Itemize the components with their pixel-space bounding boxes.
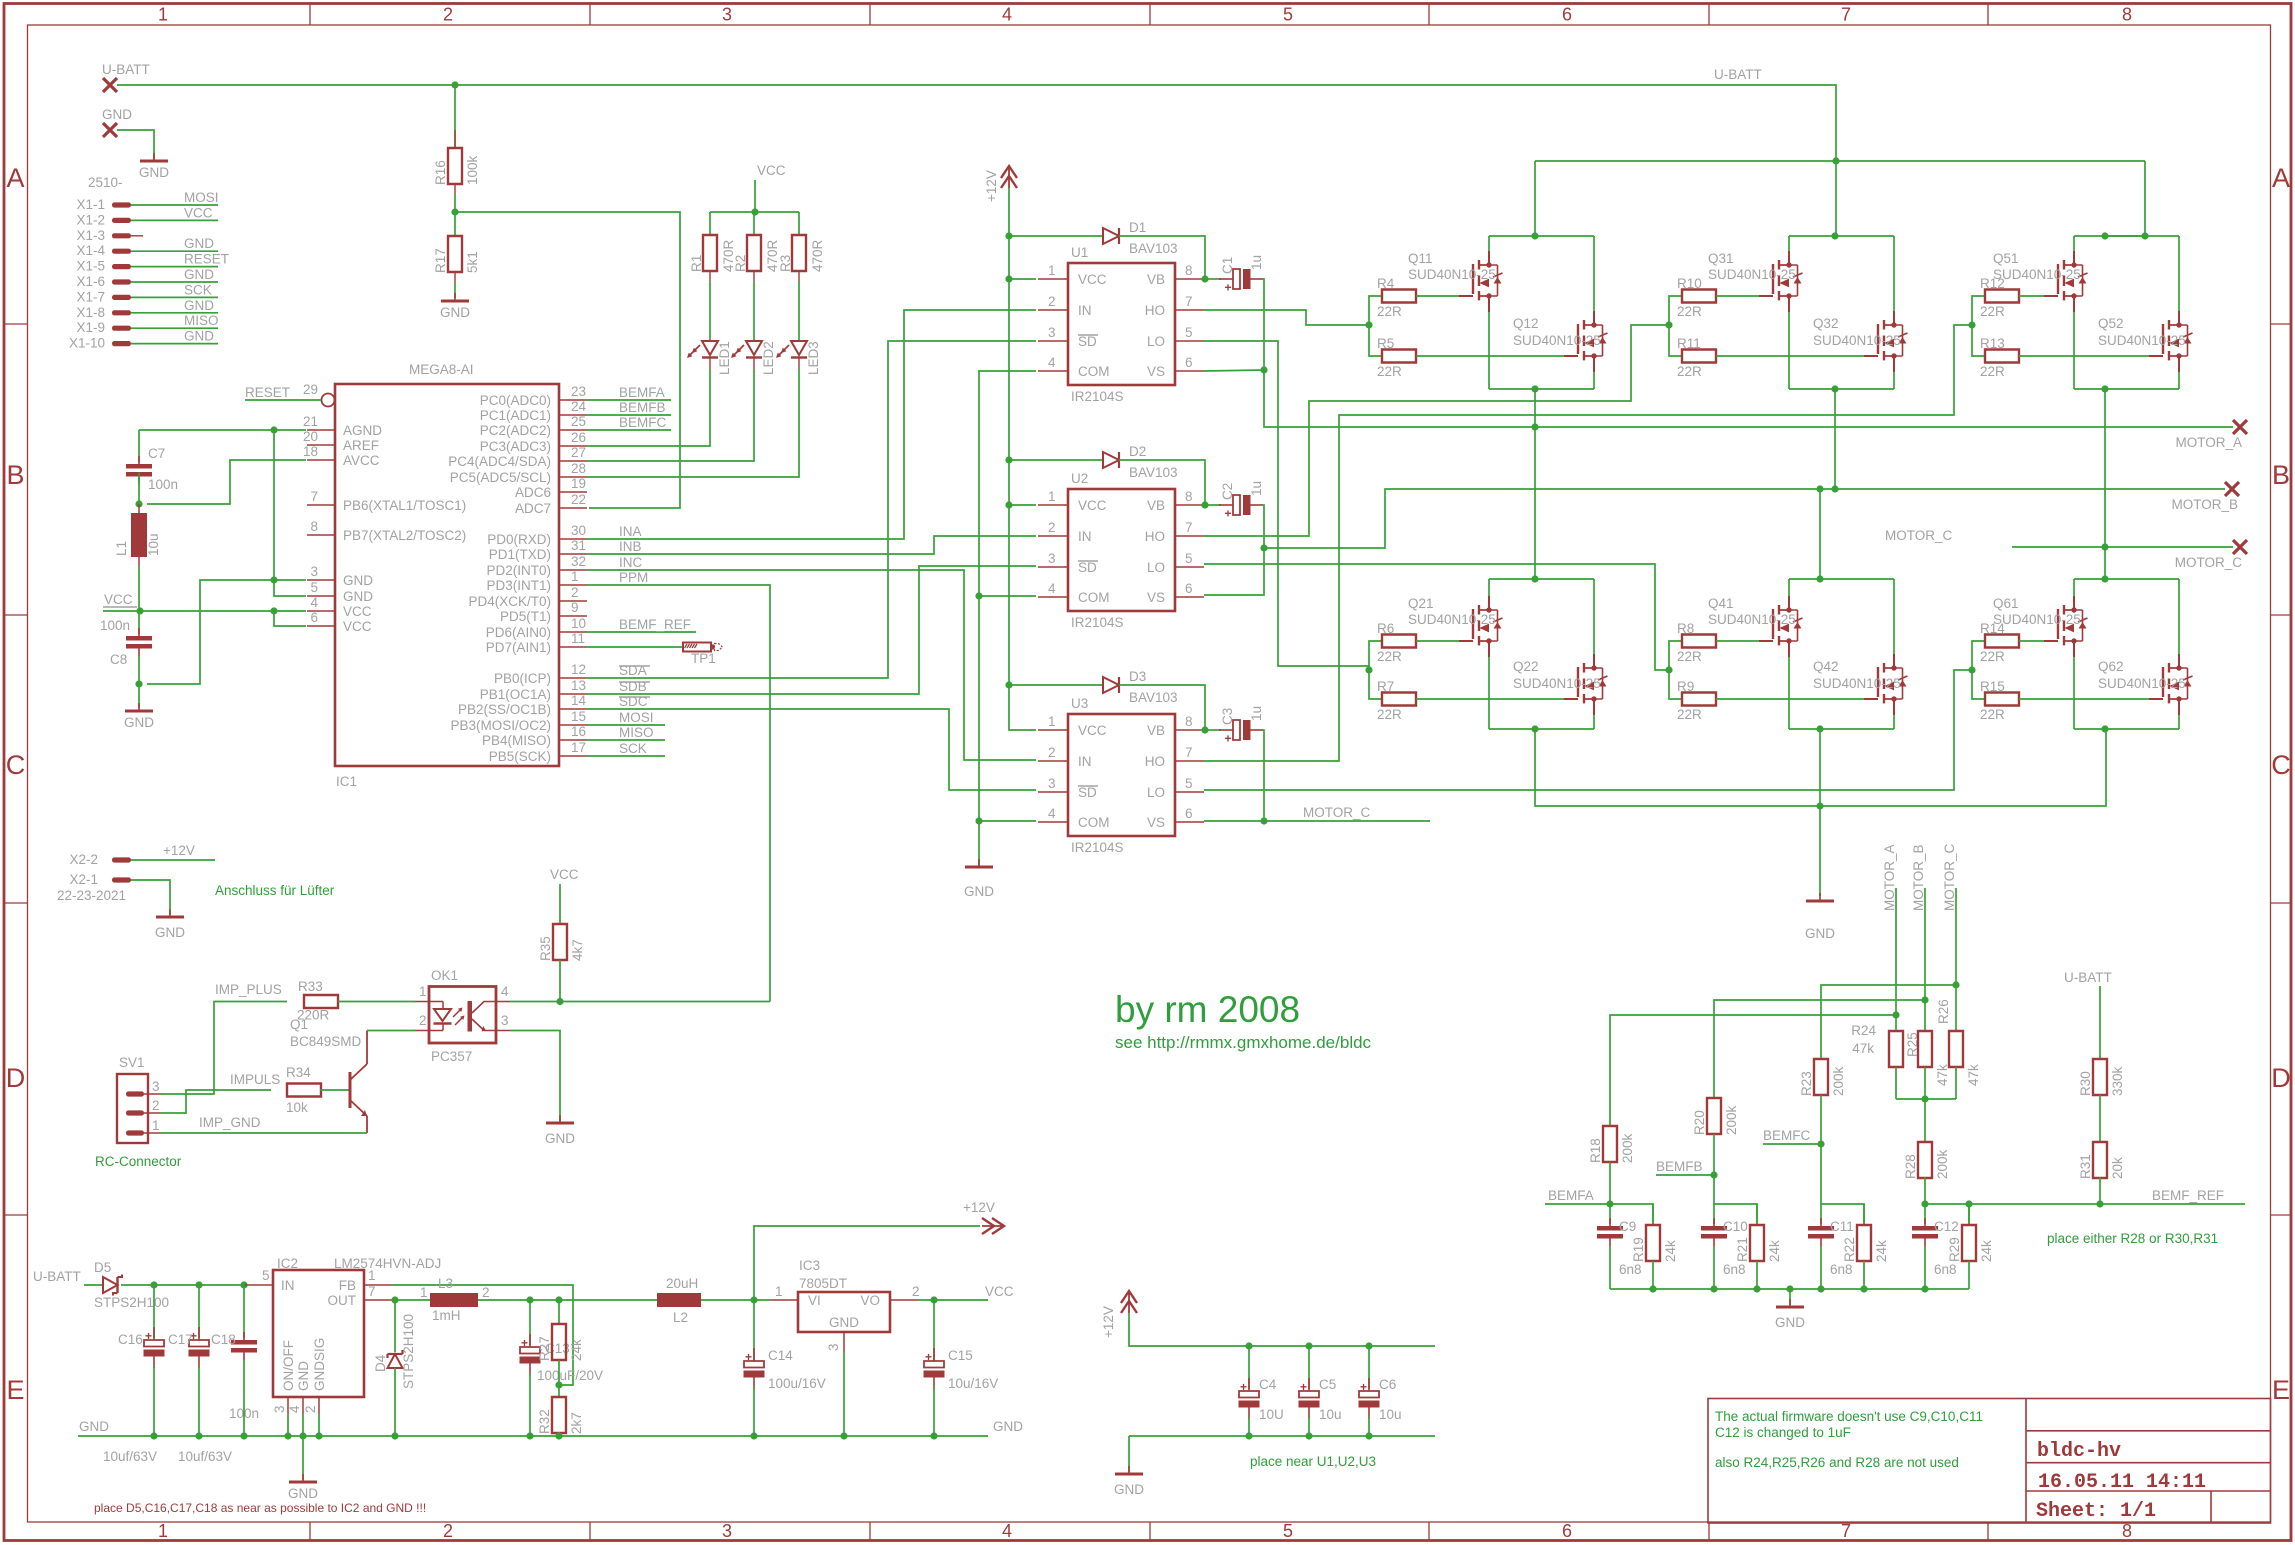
svg-text:+: + [1240, 1380, 1247, 1394]
svg-text:3: 3 [722, 1521, 732, 1541]
svg-text:VCC: VCC [1078, 272, 1107, 287]
svg-text:IR2104S: IR2104S [1071, 840, 1124, 855]
svg-text:22R: 22R [1677, 364, 1702, 379]
svg-text:IN: IN [1078, 529, 1092, 544]
svg-text:8: 8 [2122, 5, 2132, 25]
svg-text:24k: 24k [1874, 1240, 1889, 1262]
svg-text:GND: GND [343, 589, 373, 604]
svg-text:R28: R28 [1903, 1154, 1918, 1179]
svg-text:GND: GND [545, 1131, 575, 1146]
svg-text:20: 20 [303, 429, 318, 444]
svg-text:2: 2 [1048, 294, 1056, 309]
svg-text:PC5(ADC5/SCL): PC5(ADC5/SCL) [450, 470, 551, 485]
svg-text:C14: C14 [768, 1348, 793, 1363]
svg-text:D: D [2271, 1063, 2291, 1093]
svg-text:R25: R25 [1905, 1032, 1920, 1057]
svg-text:U2: U2 [1071, 471, 1088, 486]
svg-text:1: 1 [571, 569, 579, 584]
svg-text:1: 1 [419, 984, 427, 999]
svg-text:R17: R17 [433, 248, 448, 273]
svg-text:4k7: 4k7 [570, 939, 585, 961]
svg-text:C1: C1 [1220, 257, 1235, 274]
svg-text:MISO: MISO [619, 725, 654, 740]
svg-text:VS: VS [1147, 590, 1165, 605]
svg-text:C: C [6, 750, 26, 780]
svg-text:RESET: RESET [245, 385, 290, 400]
svg-text:Anschluss für Lüfter: Anschluss für Lüfter [215, 883, 335, 898]
svg-text:OK1: OK1 [431, 968, 458, 983]
svg-text:COM: COM [1078, 364, 1110, 379]
svg-text:17: 17 [571, 740, 586, 755]
svg-text:200k: 200k [1935, 1149, 1950, 1179]
svg-text:30: 30 [571, 523, 586, 538]
svg-text:10k: 10k [286, 1100, 308, 1115]
svg-text:LED3: LED3 [806, 341, 821, 375]
svg-text:X1-5: X1-5 [76, 259, 105, 274]
svg-text:R20: R20 [1692, 1110, 1707, 1135]
svg-text:PPM: PPM [619, 570, 648, 585]
svg-text:2: 2 [571, 585, 579, 600]
svg-text:X1-4: X1-4 [76, 243, 105, 258]
svg-text:VO: VO [860, 1293, 880, 1308]
svg-text:C15: C15 [948, 1348, 973, 1363]
svg-text:VCC: VCC [757, 163, 786, 178]
svg-text:GND: GND [155, 925, 185, 940]
svg-text:PD0(RXD): PD0(RXD) [487, 532, 551, 547]
svg-text:5: 5 [310, 580, 318, 595]
svg-text:IC1: IC1 [336, 774, 357, 789]
svg-text:22-23-2021: 22-23-2021 [57, 888, 126, 903]
svg-text:15: 15 [571, 709, 586, 724]
svg-text:2: 2 [1048, 745, 1056, 760]
svg-text:X1-8: X1-8 [76, 305, 105, 320]
svg-text:R12: R12 [1980, 276, 2005, 291]
svg-text:X2-2: X2-2 [69, 852, 98, 867]
svg-text:C18: C18 [211, 1332, 236, 1347]
svg-text:+12V: +12V [163, 843, 195, 858]
svg-text:+: + [1225, 732, 1232, 746]
svg-text:1u: 1u [1249, 706, 1264, 721]
svg-text:PD7(AIN1): PD7(AIN1) [486, 640, 551, 655]
svg-text:A: A [6, 163, 24, 193]
svg-text:R8: R8 [1677, 621, 1694, 636]
svg-text:BEMFC: BEMFC [1763, 1128, 1811, 1143]
svg-text:GND: GND [1775, 1315, 1805, 1330]
svg-text:LED1: LED1 [717, 341, 732, 375]
svg-text:+: + [521, 1336, 528, 1350]
svg-text:D1: D1 [1129, 220, 1146, 235]
svg-text:C5: C5 [1319, 1377, 1336, 1392]
svg-text:8: 8 [1185, 263, 1193, 278]
svg-text:OUT: OUT [328, 1293, 357, 1308]
svg-text:Q32: Q32 [1813, 316, 1839, 331]
svg-text:1u: 1u [1249, 481, 1264, 496]
svg-text:LO: LO [1147, 334, 1165, 349]
svg-text:PB1(OC1A): PB1(OC1A) [480, 687, 551, 702]
svg-text:R32: R32 [537, 1409, 552, 1434]
svg-text:25: 25 [571, 414, 586, 429]
svg-text:GND: GND [139, 165, 169, 180]
svg-text:R1: R1 [689, 255, 704, 272]
svg-text:10u: 10u [146, 533, 161, 556]
svg-text:5: 5 [1283, 1521, 1293, 1541]
svg-text:R29: R29 [1947, 1237, 1962, 1262]
svg-text:D5: D5 [94, 1260, 111, 1275]
svg-text:2: 2 [1048, 520, 1056, 535]
svg-text:1: 1 [1048, 489, 1056, 504]
svg-text:VCC: VCC [550, 867, 579, 882]
svg-text:2: 2 [303, 1405, 318, 1413]
svg-text:10uf/63V: 10uf/63V [178, 1449, 232, 1464]
svg-text:MOTOR_A: MOTOR_A [1882, 844, 1897, 911]
svg-text:VI: VI [808, 1293, 821, 1308]
svg-text:X1-3: X1-3 [76, 228, 105, 243]
svg-text:GND: GND [993, 1419, 1023, 1434]
svg-text:PB3(MOSI/OC2): PB3(MOSI/OC2) [450, 718, 551, 733]
svg-text:21: 21 [303, 414, 318, 429]
svg-text:5: 5 [1185, 325, 1193, 340]
svg-text:MOTOR_A: MOTOR_A [2175, 435, 2242, 450]
svg-text:HO: HO [1145, 754, 1165, 769]
svg-text:22R: 22R [1980, 304, 2005, 319]
svg-text:470R: 470R [810, 239, 825, 272]
svg-text:BAV103: BAV103 [1129, 690, 1178, 705]
svg-text:L2: L2 [673, 1310, 688, 1325]
svg-text:LM2574HVN-ADJ: LM2574HVN-ADJ [334, 1256, 441, 1271]
svg-text:4: 4 [501, 984, 509, 999]
svg-text:PC2(ADC2): PC2(ADC2) [480, 423, 551, 438]
svg-text:16: 16 [571, 724, 586, 739]
svg-text:SUD40N10-25: SUD40N10-25 [1708, 267, 1796, 282]
svg-text:24: 24 [571, 399, 587, 414]
svg-text:2: 2 [482, 1285, 490, 1300]
svg-text:HO: HO [1145, 303, 1165, 318]
svg-text:SUD40N10-25: SUD40N10-25 [1513, 676, 1601, 691]
svg-text:Q31: Q31 [1708, 251, 1734, 266]
svg-text:22R: 22R [1377, 364, 1402, 379]
svg-text:R2: R2 [733, 255, 748, 272]
svg-text:+: + [1300, 1380, 1307, 1394]
svg-text:6n8: 6n8 [1723, 1262, 1746, 1277]
svg-text:IMP_PLUS: IMP_PLUS [215, 982, 282, 997]
svg-text:SD: SD [1078, 334, 1097, 349]
svg-text:C3: C3 [1220, 708, 1235, 725]
svg-text:SD: SD [1078, 560, 1097, 575]
svg-text:GND: GND [343, 573, 373, 588]
svg-text:4: 4 [1048, 355, 1056, 370]
svg-text:27: 27 [571, 445, 586, 460]
svg-text:9: 9 [571, 600, 579, 615]
svg-text:GND: GND [1114, 1482, 1144, 1497]
svg-text:7: 7 [1185, 745, 1193, 760]
svg-text:COM: COM [1078, 590, 1110, 605]
svg-text:2: 2 [152, 1098, 160, 1113]
svg-text:U-BATT: U-BATT [2064, 970, 2112, 985]
svg-text:IN: IN [281, 1278, 295, 1293]
svg-text:VB: VB [1147, 723, 1165, 738]
svg-text:1: 1 [158, 1521, 168, 1541]
svg-text:GND: GND [79, 1419, 109, 1434]
svg-text:U1: U1 [1071, 245, 1088, 260]
svg-text:22R: 22R [1377, 304, 1402, 319]
svg-text:R4: R4 [1377, 276, 1395, 291]
svg-text:22R: 22R [1677, 707, 1702, 722]
svg-text:A: A [2272, 163, 2290, 193]
svg-text:D3: D3 [1129, 669, 1146, 684]
svg-text:4: 4 [1048, 806, 1056, 821]
svg-text:D: D [6, 1063, 26, 1093]
svg-text:47k: 47k [1966, 1064, 1981, 1086]
svg-text:7805DT: 7805DT [799, 1276, 847, 1291]
svg-text:B: B [6, 460, 24, 490]
svg-text:SUD40N10-25: SUD40N10-25 [1993, 612, 2081, 627]
svg-text:7: 7 [1841, 5, 1851, 25]
svg-text:PD3(INT1): PD3(INT1) [486, 578, 551, 593]
svg-text:MOTOR_C: MOTOR_C [2175, 555, 2243, 570]
svg-text:R33: R33 [298, 979, 323, 994]
svg-text:5: 5 [1185, 776, 1193, 791]
svg-text:MOSI: MOSI [619, 710, 654, 725]
svg-text:Q42: Q42 [1813, 659, 1839, 674]
svg-text:2k7: 2k7 [569, 1412, 584, 1434]
svg-text:3: 3 [826, 1343, 841, 1351]
svg-text:1: 1 [368, 1268, 376, 1283]
svg-text:C8: C8 [110, 652, 127, 667]
svg-text:+: + [1225, 507, 1232, 521]
svg-text:RC-Connector: RC-Connector [95, 1154, 182, 1169]
svg-text:R24: R24 [1851, 1023, 1876, 1038]
svg-text:C7: C7 [148, 446, 165, 461]
svg-text:STPS2H100: STPS2H100 [94, 1295, 169, 1310]
svg-text:22R: 22R [1377, 649, 1402, 664]
svg-text:16.05.11 14:11: 16.05.11 14:11 [2038, 1471, 2206, 1494]
svg-text:22R: 22R [1377, 707, 1402, 722]
svg-text:IMP_GND: IMP_GND [199, 1115, 261, 1130]
svg-text:+: + [1360, 1380, 1367, 1394]
svg-text:6: 6 [1562, 5, 1572, 25]
svg-text:C9: C9 [1619, 1219, 1636, 1234]
svg-text:SUD40N10-25: SUD40N10-25 [1513, 333, 1601, 348]
svg-text:8: 8 [1185, 489, 1193, 504]
svg-text:D2: D2 [1129, 444, 1146, 459]
svg-text:also R24,R25,R26 and R28 are n: also R24,R25,R26 and R28 are not used [1715, 1455, 1959, 1470]
svg-text:C11: C11 [1830, 1219, 1854, 1234]
svg-text:R10: R10 [1677, 276, 1702, 291]
svg-text:R30: R30 [2078, 1071, 2093, 1096]
svg-text:2: 2 [443, 1521, 453, 1541]
svg-text:47k: 47k [1852, 1041, 1874, 1056]
svg-text:100u/16V: 100u/16V [768, 1376, 826, 1391]
svg-text:3: 3 [272, 1405, 287, 1413]
svg-text:VB: VB [1147, 498, 1165, 513]
svg-text:GNDSIG: GNDSIG [312, 1338, 327, 1391]
svg-text:bldc-hv: bldc-hv [2037, 1440, 2121, 1463]
svg-text:100n: 100n [148, 477, 178, 492]
svg-text:GND: GND [184, 236, 214, 251]
svg-text:BEMFB: BEMFB [619, 400, 666, 415]
svg-text:200k: 200k [1831, 1066, 1846, 1096]
svg-text:R27: R27 [537, 1336, 552, 1361]
svg-text:SDB: SDB [619, 679, 647, 694]
svg-text:X2-1: X2-1 [69, 872, 98, 887]
svg-text:R15: R15 [1980, 679, 2005, 694]
svg-text:3: 3 [722, 5, 732, 25]
svg-text:GND: GND [829, 1315, 859, 1330]
svg-text:2510-: 2510- [88, 175, 123, 190]
svg-text:SUD40N10-25: SUD40N10-25 [1813, 333, 1901, 348]
svg-text:3: 3 [152, 1079, 160, 1094]
svg-text:31: 31 [571, 538, 586, 553]
svg-text:U-BATT: U-BATT [1714, 67, 1762, 82]
svg-text:BEMFB: BEMFB [1656, 1159, 1703, 1174]
svg-text:SUD40N10-25: SUD40N10-25 [1408, 612, 1496, 627]
svg-text:+: + [145, 1329, 152, 1343]
svg-text:GND: GND [964, 884, 994, 899]
svg-text:1: 1 [152, 1118, 160, 1133]
svg-text:R14: R14 [1980, 621, 2005, 636]
svg-text:IR2104S: IR2104S [1071, 615, 1124, 630]
svg-text:IC2: IC2 [277, 1256, 298, 1271]
svg-text:STPS2H100: STPS2H100 [401, 1314, 416, 1389]
svg-text:100k: 100k [465, 155, 480, 185]
svg-text:C12 is changed to 1uF: C12 is changed to 1uF [1715, 1425, 1851, 1440]
svg-text:VCC: VCC [343, 604, 372, 619]
svg-text:Q51: Q51 [1993, 251, 2019, 266]
svg-text:PB4(MISO): PB4(MISO) [482, 733, 551, 748]
svg-text:1u: 1u [1249, 255, 1264, 270]
svg-text:B: B [2272, 460, 2290, 490]
svg-text:GND: GND [184, 267, 214, 282]
svg-text:VS: VS [1147, 364, 1165, 379]
svg-text:24k: 24k [569, 1339, 584, 1361]
svg-text:R6: R6 [1377, 621, 1394, 636]
svg-text:22R: 22R [1677, 649, 1702, 664]
svg-text:7: 7 [1185, 520, 1193, 535]
svg-text:place D5,C16,C17,C18 as near a: place D5,C16,C17,C18 as near as possible… [94, 1501, 426, 1515]
svg-text:INA: INA [619, 524, 642, 539]
svg-text:PD6(AIN0): PD6(AIN0) [486, 625, 551, 640]
svg-text:VB: VB [1147, 272, 1165, 287]
svg-text:200k: 200k [1724, 1105, 1739, 1135]
svg-text:20k: 20k [2110, 1157, 2125, 1179]
svg-text:+12V: +12V [984, 170, 999, 202]
svg-text:24k: 24k [1663, 1240, 1678, 1262]
svg-text:PB0(ICP): PB0(ICP) [494, 671, 551, 686]
svg-text:INB: INB [619, 539, 642, 554]
svg-text:The actual firmware doesn't us: The actual firmware doesn't use C9,C10,C… [1715, 1409, 1983, 1424]
svg-text:10u: 10u [1319, 1407, 1342, 1422]
svg-text:1: 1 [1048, 714, 1056, 729]
svg-text:C2: C2 [1220, 483, 1235, 500]
svg-text:19: 19 [571, 476, 586, 491]
svg-text:C16: C16 [118, 1332, 143, 1347]
svg-text:6n8: 6n8 [1934, 1262, 1957, 1277]
svg-text:3: 3 [1048, 776, 1056, 791]
svg-text:10uf/63V: 10uf/63V [103, 1449, 157, 1464]
svg-text:C17: C17 [168, 1332, 193, 1347]
svg-text:3: 3 [501, 1013, 509, 1028]
svg-text:LO: LO [1147, 560, 1165, 575]
svg-text:L3: L3 [438, 1276, 453, 1291]
svg-text:X1-10: X1-10 [69, 336, 105, 351]
svg-text:C12: C12 [1934, 1219, 1959, 1234]
svg-text:32: 32 [571, 554, 586, 569]
svg-text:BEMFA: BEMFA [619, 385, 665, 400]
svg-text:GND: GND [288, 1486, 318, 1501]
svg-text:GND: GND [184, 329, 214, 344]
svg-text:PB6(XTAL1/TOSC1): PB6(XTAL1/TOSC1) [343, 498, 466, 513]
svg-text:FB: FB [339, 1278, 356, 1293]
svg-text:R22: R22 [1842, 1237, 1857, 1262]
svg-text:Q61: Q61 [1993, 596, 2019, 611]
svg-text:by rm 2008: by rm 2008 [1115, 989, 1300, 1030]
svg-text:X1-7: X1-7 [76, 289, 105, 304]
svg-text:SUD40N10-25: SUD40N10-25 [2098, 676, 2186, 691]
svg-text:PD2(INT0): PD2(INT0) [486, 563, 551, 578]
svg-text:1mH: 1mH [432, 1308, 461, 1323]
svg-text:X1-6: X1-6 [76, 274, 105, 289]
svg-text:VS: VS [1147, 815, 1165, 830]
svg-text:6: 6 [1185, 581, 1193, 596]
svg-text:IMPULS: IMPULS [230, 1072, 280, 1087]
svg-text:PD4(XCK/T0): PD4(XCK/T0) [468, 594, 551, 609]
svg-text:BEMFA: BEMFA [1548, 1188, 1594, 1203]
svg-text:6: 6 [1562, 1521, 1572, 1541]
svg-text:SUD40N10-25: SUD40N10-25 [1993, 267, 2081, 282]
svg-text:R21: R21 [1735, 1237, 1750, 1262]
svg-text:8: 8 [1185, 714, 1193, 729]
svg-text:Q41: Q41 [1708, 596, 1734, 611]
svg-text:SUD40N10-25: SUD40N10-25 [1708, 612, 1796, 627]
svg-text:SV1: SV1 [119, 1055, 145, 1070]
svg-text:+: + [1225, 281, 1232, 295]
svg-text:+12V: +12V [963, 1200, 995, 1215]
svg-text:Q11: Q11 [1408, 251, 1433, 266]
svg-text:PC4(ADC4/SDA): PC4(ADC4/SDA) [448, 454, 551, 469]
svg-text:+: + [745, 1350, 752, 1364]
svg-text:AREF: AREF [343, 438, 379, 453]
svg-text:100uF/20V: 100uF/20V [537, 1368, 603, 1383]
svg-text:ADC7: ADC7 [515, 501, 551, 516]
svg-text:VCC: VCC [343, 619, 372, 634]
svg-text:VCC: VCC [985, 1284, 1014, 1299]
svg-text:TP1: TP1 [691, 651, 716, 666]
svg-text:22: 22 [571, 492, 586, 507]
svg-text:SDC: SDC [619, 694, 648, 709]
svg-text:BEMFC: BEMFC [619, 415, 667, 430]
svg-text:ON/OFF: ON/OFF [281, 1340, 296, 1391]
svg-text:2: 2 [443, 5, 453, 25]
svg-text:2: 2 [912, 1284, 920, 1299]
svg-text:R31: R31 [2078, 1154, 2093, 1179]
svg-text:PD1(TXD): PD1(TXD) [489, 547, 551, 562]
svg-text:GND: GND [440, 305, 470, 320]
svg-text:MOTOR_C: MOTOR_C [1942, 843, 1957, 911]
svg-text:8: 8 [2122, 1521, 2132, 1541]
svg-text:BC849SMD: BC849SMD [290, 1034, 362, 1049]
svg-text:LO: LO [1147, 785, 1165, 800]
svg-text:MOTOR_C: MOTOR_C [1303, 805, 1371, 820]
svg-text:R23: R23 [1799, 1071, 1814, 1096]
svg-text:LED2: LED2 [761, 341, 776, 375]
svg-text:SCK: SCK [619, 741, 647, 756]
svg-text:C6: C6 [1379, 1377, 1396, 1392]
svg-text:VCC: VCC [1078, 498, 1107, 513]
svg-text:BAV103: BAV103 [1129, 241, 1178, 256]
svg-text:7: 7 [310, 489, 318, 504]
svg-text:PC3(ADC3): PC3(ADC3) [480, 439, 551, 454]
svg-text:MOTOR_B: MOTOR_B [1911, 844, 1926, 911]
